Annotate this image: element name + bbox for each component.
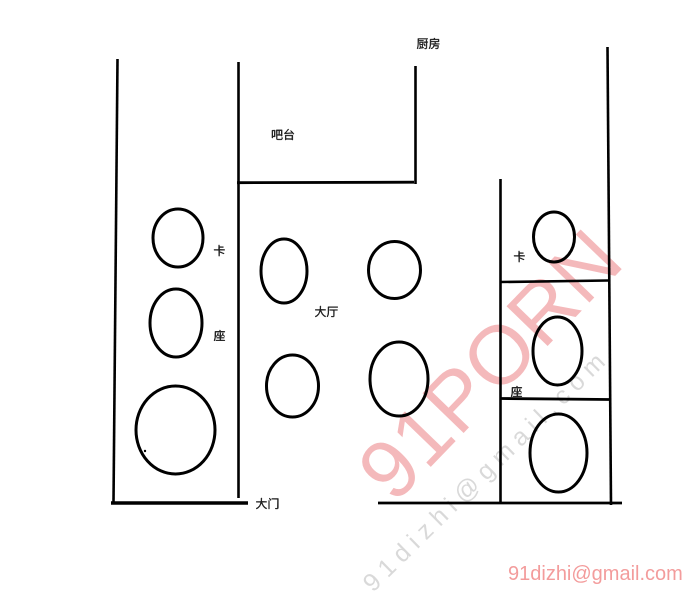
svg-text:91dizhi@gmail.com: 91dizhi@gmail.com bbox=[508, 563, 683, 585]
